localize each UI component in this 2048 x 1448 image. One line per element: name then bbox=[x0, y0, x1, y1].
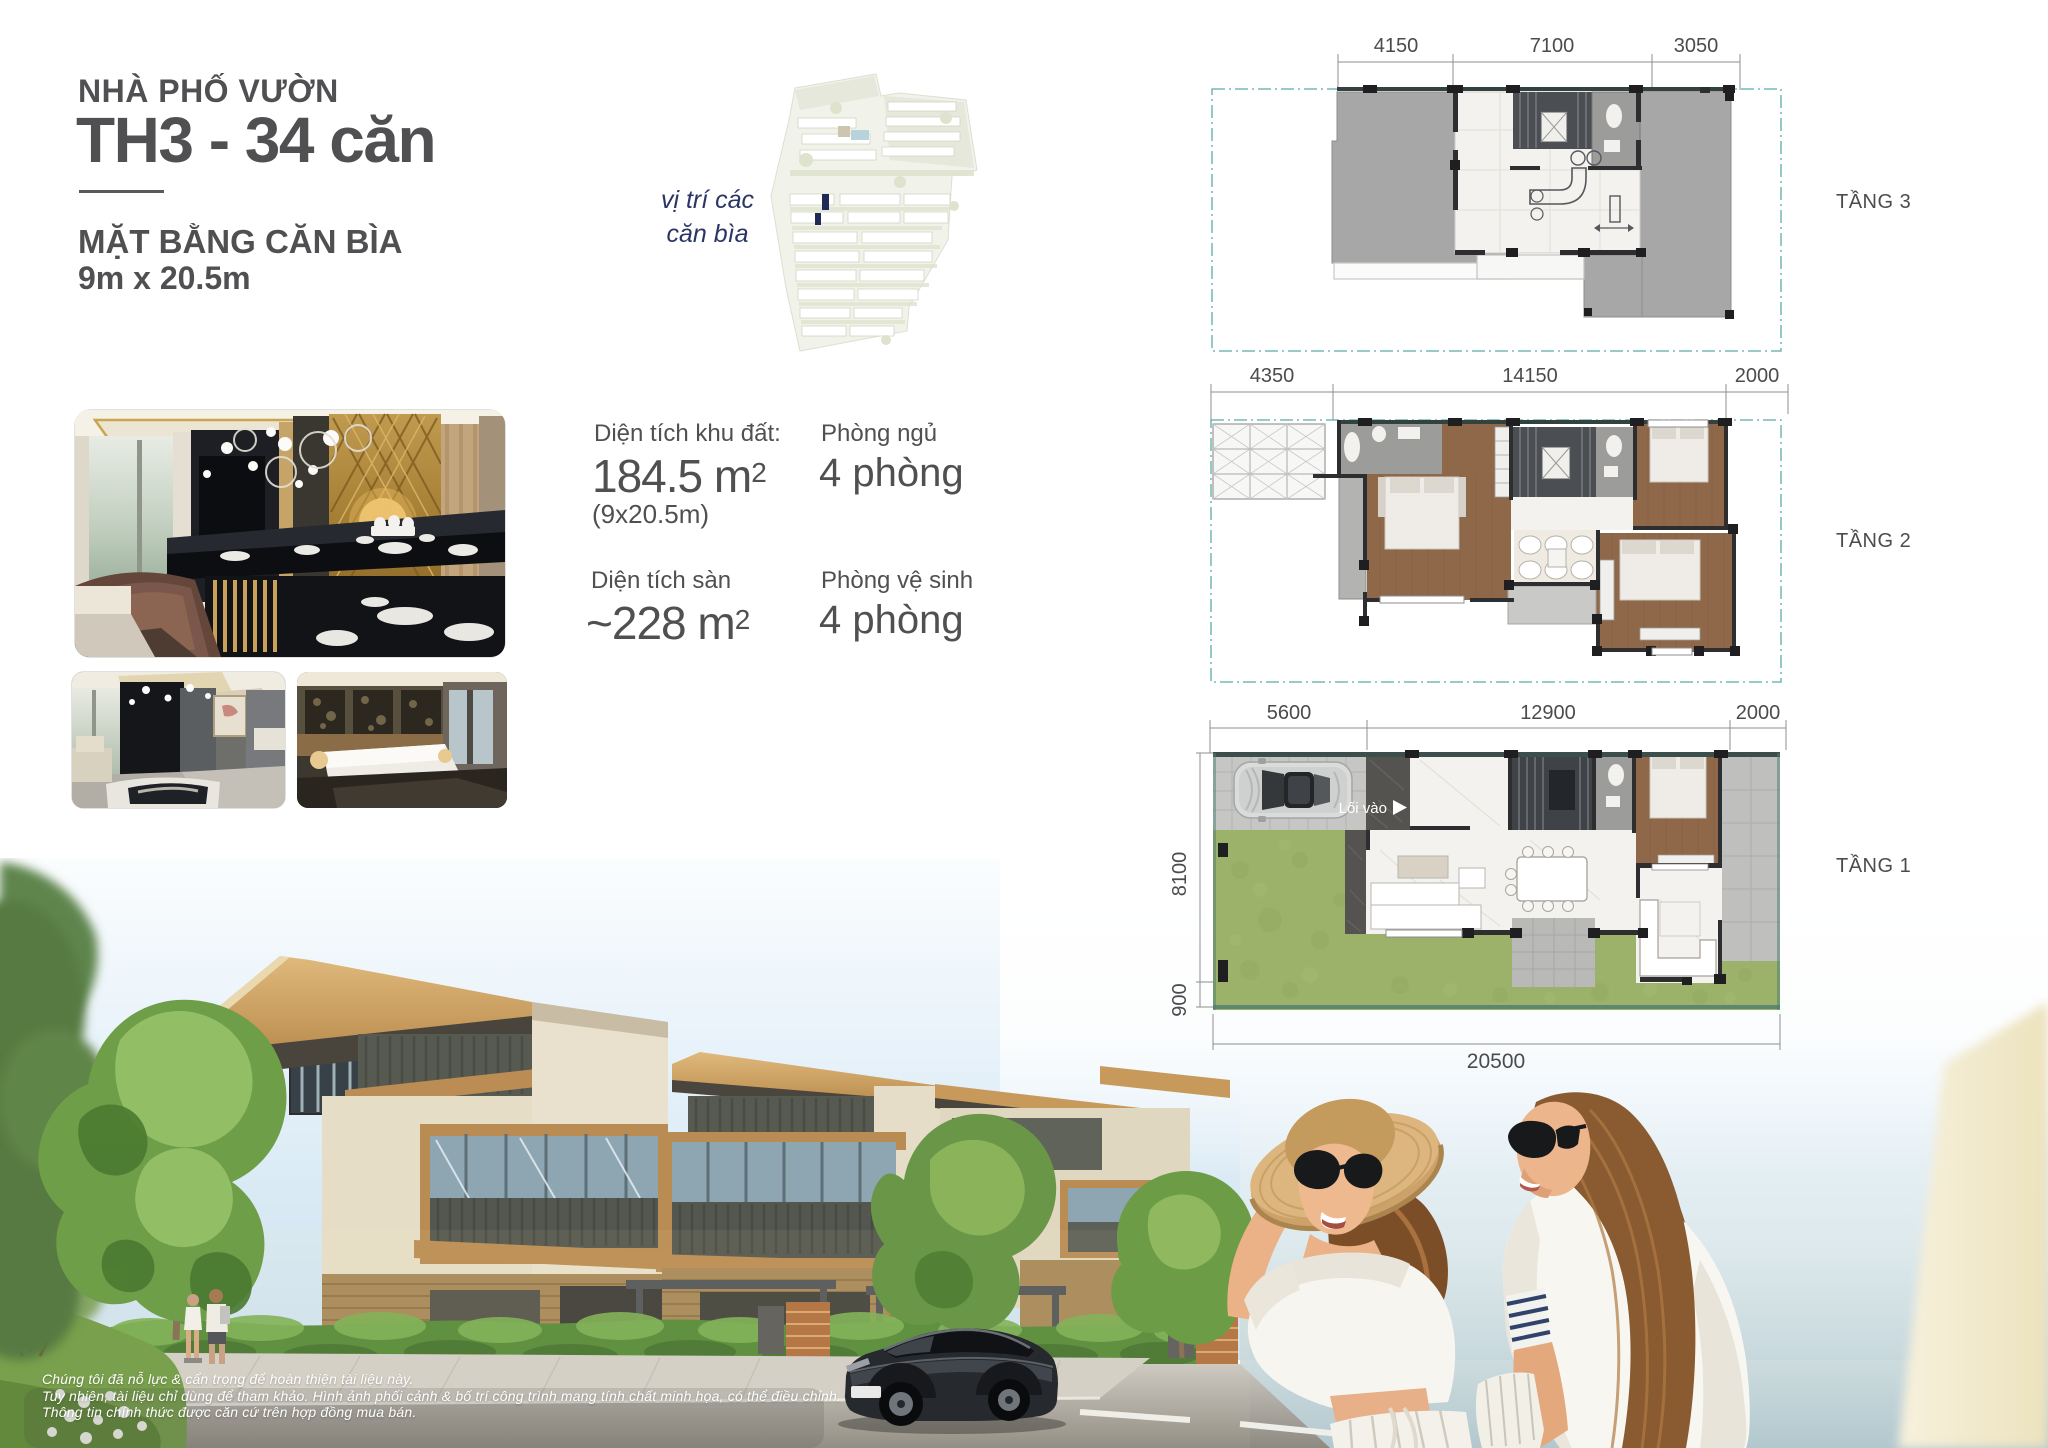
svg-text:2000: 2000 bbox=[1736, 702, 1781, 724]
svg-text:5600: 5600 bbox=[1267, 702, 1312, 724]
svg-text:3050: 3050 bbox=[1674, 35, 1719, 57]
svg-text:14150: 14150 bbox=[1502, 365, 1558, 387]
svg-text:4350: 4350 bbox=[1250, 365, 1295, 387]
svg-text:900: 900 bbox=[1169, 983, 1191, 1016]
svg-text:4150: 4150 bbox=[1374, 35, 1419, 57]
svg-text:12900: 12900 bbox=[1520, 702, 1576, 724]
svg-text:20500: 20500 bbox=[1467, 1050, 1525, 1073]
svg-text:2000: 2000 bbox=[1735, 365, 1780, 387]
svg-text:Lối vào: Lối vào bbox=[1339, 800, 1387, 817]
svg-text:7100: 7100 bbox=[1530, 35, 1575, 57]
svg-text:8100: 8100 bbox=[1169, 852, 1191, 897]
